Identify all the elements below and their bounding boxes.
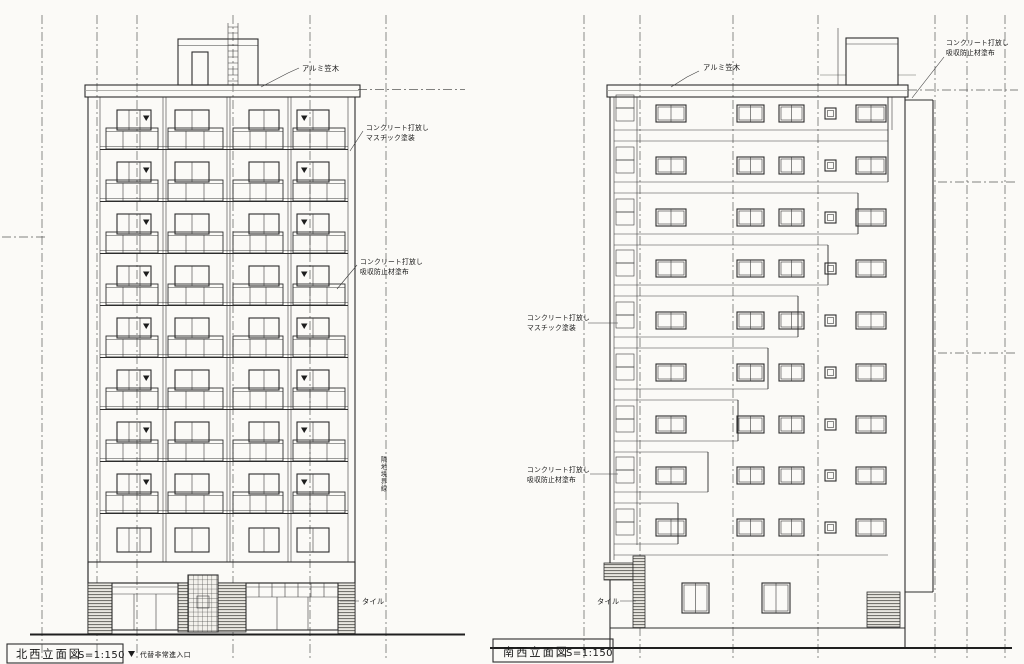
sw-label-absorb-left-1: コンクリート打放し	[527, 465, 590, 474]
nw-ground-floor	[88, 562, 355, 634]
nw-scale: S=1:150	[78, 650, 125, 661]
nw-lowest-window-row	[117, 528, 329, 552]
nw-label-tile: タイル	[362, 597, 384, 606]
tile-pier	[633, 556, 645, 628]
nw-label-coping: アルミ笠木	[302, 64, 339, 73]
sw-title: 南西立面図	[503, 645, 569, 659]
nw-title-block: 北西立面図 S=1:150 代替非常進入口	[7, 644, 191, 663]
nw-elevation: アルミ笠木 コンクリート打放し マスチック塗装 コンクリート打放し 吸収防止材塗…	[2, 15, 465, 663]
nw-note: 代替非常進入口	[140, 650, 191, 659]
sw-scale: S=1:150	[566, 648, 613, 659]
sw-gridlines	[584, 15, 1018, 660]
sw-label-mastic-2: マスチック塗装	[527, 323, 576, 332]
nw-label-mastic-2: マスチック塗装	[366, 133, 415, 142]
sw-label-absorb-top-1: コンクリート打放し	[946, 38, 1009, 47]
sw-label-mastic-1: コンクリート打放し	[527, 313, 590, 322]
nw-gridlines	[2, 15, 465, 660]
elevation-drawing: アルミ笠木 コンクリート打放し マスチック塗装 コンクリート打放し 吸収防止材塗…	[0, 0, 1024, 664]
sw-label-absorb-top-2: 吸収防止材塗布	[946, 48, 995, 57]
nw-label-absorb-1: コンクリート打放し	[360, 257, 423, 266]
sw-label-coping: アルミ笠木	[703, 63, 740, 72]
nw-title: 北西立面図	[16, 647, 82, 661]
sw-label-absorb-left-2: 吸収防止材塗布	[527, 475, 576, 484]
nw-label-absorb-2: 吸収防止材塗布	[360, 267, 409, 276]
entrance-door	[188, 575, 218, 632]
nw-building	[30, 23, 465, 635]
drawing-sheet: アルミ笠木 コンクリート打放し マスチック塗装 コンクリート打放し 吸収防止材塗…	[0, 0, 1024, 664]
emergency-entry-marker	[128, 651, 135, 657]
nw-label-mastic-1: コンクリート打放し	[366, 123, 429, 132]
sw-title-block: 南西立面図 S=1:150	[493, 639, 613, 662]
sw-building	[490, 28, 1012, 648]
nw-label-boundary-line: 隣地境界線	[380, 455, 387, 493]
sw-elevation: アルミ笠木 コンクリート打放し 吸収防止材塗布 コンクリート打放し マスチック塗…	[490, 15, 1018, 662]
sw-label-tile: タイル	[597, 597, 619, 606]
sw-ground-floor	[604, 556, 905, 628]
